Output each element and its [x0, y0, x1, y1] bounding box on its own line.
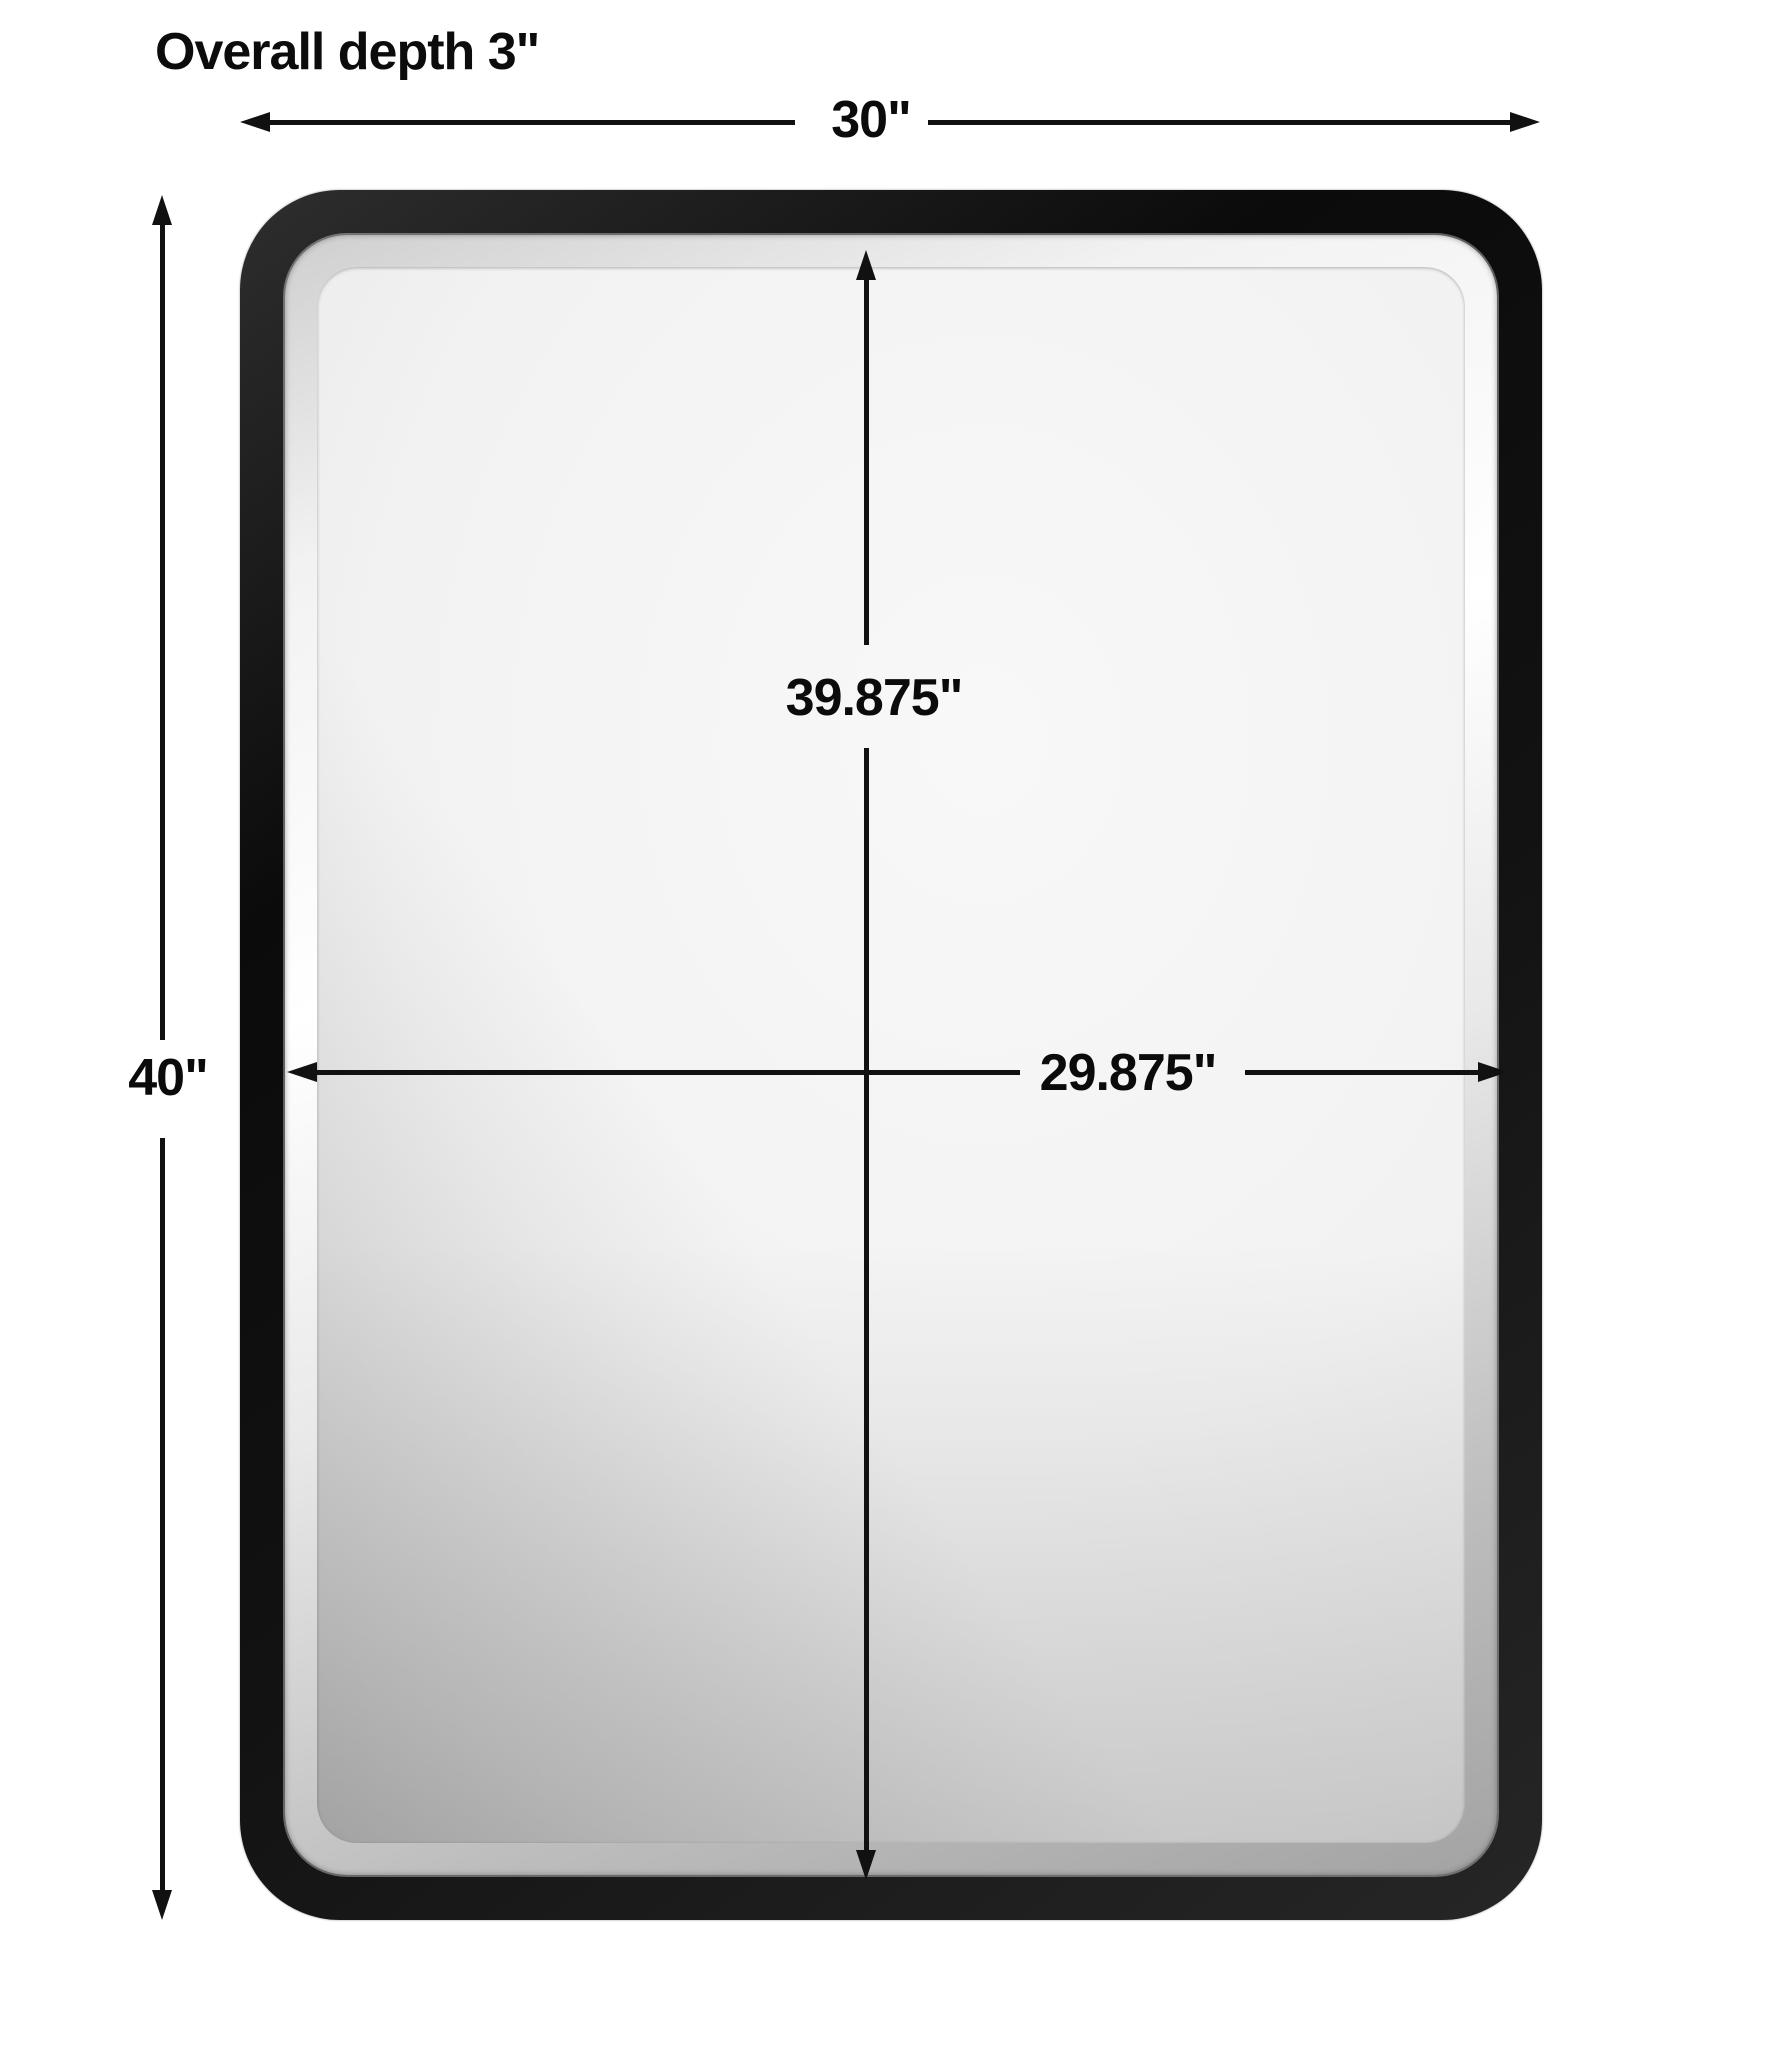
dim-line-segment [160, 1138, 165, 1893]
dim-line-segment [864, 748, 869, 1853]
mirror-bevel-edge [285, 235, 1497, 1875]
arrowhead-up-icon [152, 195, 172, 225]
dim-line-segment [864, 277, 869, 645]
arrowhead-left-icon [287, 1062, 317, 1082]
mirror-frame [240, 190, 1542, 1920]
arrowhead-down-icon [856, 1850, 876, 1880]
mirror-width-label: 29.875" [1040, 1043, 1217, 1103]
overall-depth-title: Overall depth 3" [155, 22, 539, 82]
mirror-glass [317, 267, 1465, 1843]
overall-width-label: 30" [831, 90, 911, 150]
dim-line-segment [160, 222, 165, 1040]
dim-line-segment [928, 120, 1515, 125]
dim-line-segment [265, 120, 795, 125]
arrowhead-up-icon [856, 250, 876, 280]
arrowhead-right-icon [1510, 112, 1540, 132]
dim-line-segment [1245, 1070, 1482, 1075]
dim-line-segment [314, 1070, 1020, 1075]
arrowhead-right-icon [1478, 1062, 1508, 1082]
overall-height-label: 40" [128, 1048, 208, 1108]
arrowhead-down-icon [152, 1890, 172, 1920]
product-dimension-diagram: Overall depth 3" 30" 40" 39.875" 29.875" [0, 0, 1777, 2048]
mirror-height-label: 39.875" [786, 668, 963, 728]
